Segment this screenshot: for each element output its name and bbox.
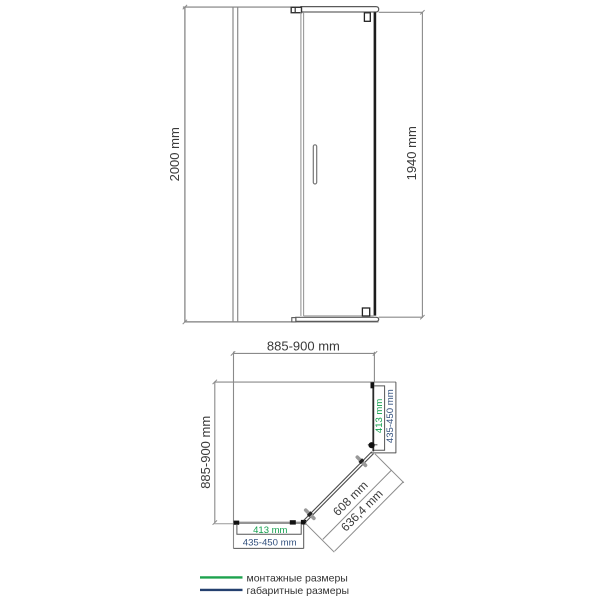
svg-text:монтажные размеры: монтажные размеры xyxy=(247,573,348,585)
svg-text:413 mm: 413 mm xyxy=(374,399,385,433)
svg-text:413 mm: 413 mm xyxy=(253,525,287,536)
svg-text:885-900 mm: 885-900 mm xyxy=(198,416,213,489)
svg-text:435-450 mm: 435-450 mm xyxy=(243,538,297,549)
svg-text:габаритные размеры: габаритные размеры xyxy=(247,585,350,597)
svg-text:1940 mm: 1940 mm xyxy=(404,126,419,180)
svg-text:435-450 mm: 435-450 mm xyxy=(385,389,396,443)
svg-text:885-900 mm: 885-900 mm xyxy=(267,338,340,353)
svg-text:2000 mm: 2000 mm xyxy=(167,127,182,181)
